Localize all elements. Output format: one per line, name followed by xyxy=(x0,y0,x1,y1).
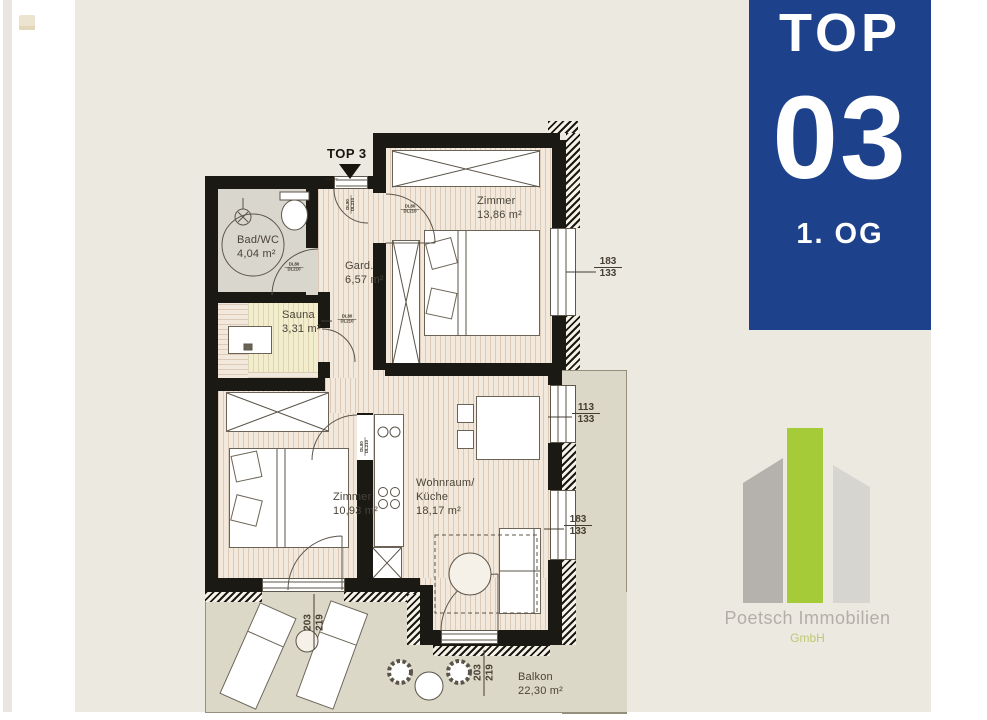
bed2-lines xyxy=(277,449,285,547)
stove-burner xyxy=(379,488,388,497)
room-area: 22,30 m² xyxy=(518,684,563,698)
window-dim: 113 133 xyxy=(572,402,600,425)
stove-burner xyxy=(391,500,400,509)
company-suffix: GmbH xyxy=(700,631,915,645)
room-area: 3,31 m² xyxy=(282,322,321,336)
door-tag: DL90 DL210 xyxy=(346,195,355,214)
dim-width: 183 xyxy=(564,514,592,526)
entrance-arrow-icon xyxy=(339,164,361,179)
window-dim: 183 133 xyxy=(564,514,592,537)
logo-green-bar xyxy=(787,428,823,603)
balcony-chair xyxy=(389,661,411,683)
company-logo-icon xyxy=(738,425,878,607)
door-tag-line: DL210 xyxy=(338,320,357,324)
room-name: Zimmer xyxy=(333,490,378,504)
appliance-cross xyxy=(373,548,401,578)
door-arc-bedroom1 xyxy=(386,194,435,243)
balcony-chair xyxy=(448,661,470,683)
room-area: 10,93 m² xyxy=(333,504,378,518)
door-tag-line: DL210 xyxy=(351,195,355,214)
unit-badge: TOP 03 1. OG xyxy=(749,0,931,330)
dim-height: 133 xyxy=(572,414,600,425)
room-area: 6,57 m² xyxy=(345,273,384,287)
door-arc-sauna xyxy=(322,329,355,362)
room-label-bedroom2: Zimmer 10,93 m² xyxy=(333,490,378,518)
wardrobe-cross xyxy=(227,393,328,431)
door-tag: DL80 DL210 xyxy=(285,263,304,272)
entrance-small-tag: SW 80C xyxy=(325,178,338,182)
room-area: 4,04 m² xyxy=(237,247,279,261)
room-label-sauna: Sauna 3,31 m² xyxy=(282,308,321,336)
door-tag: DL80 DL210 xyxy=(401,205,420,214)
wardrobe-cross xyxy=(393,241,419,363)
window-dim: 183 133 xyxy=(594,256,622,279)
badge-unit-number: 03 xyxy=(749,90,931,186)
sink-basin xyxy=(378,427,388,437)
window-mullions xyxy=(558,229,566,559)
dim-width: 203 xyxy=(473,659,485,687)
door-tag-line: DL210 xyxy=(401,210,420,214)
badge-floor: 1. OG xyxy=(749,218,931,251)
sink-drain xyxy=(244,344,252,350)
round-table-living xyxy=(449,553,491,595)
room-area: 18,17 m² xyxy=(416,504,474,518)
door-tag: DL80 DL210 xyxy=(360,437,369,456)
sink-basin xyxy=(390,427,400,437)
door-dim: 203 219 xyxy=(303,609,326,637)
room-name: Sauna xyxy=(282,308,321,322)
room-label-balcony: Balkon 22,30 m² xyxy=(518,670,563,698)
room-label-garderobe: Gard. 6,57 m² xyxy=(345,259,384,287)
entrance-marker: TOP 3 xyxy=(327,146,367,161)
room-name: Zimmer xyxy=(477,194,522,208)
door-tag-line: DL210 xyxy=(365,437,369,456)
room-area: 13,86 m² xyxy=(477,208,522,222)
dim-width: 203 xyxy=(303,609,315,637)
balcony-table xyxy=(415,672,443,700)
room-name: Wohnraum/ xyxy=(416,476,474,490)
dim-width: 113 xyxy=(572,402,600,414)
dim-width: 183 xyxy=(594,256,622,268)
door-tag: DL80 DL210 xyxy=(338,315,357,324)
door-arc-bedroom2 xyxy=(312,415,357,460)
room-name: Gard. xyxy=(345,259,384,273)
wc-bowl xyxy=(282,200,308,230)
room-name-2: Küche xyxy=(416,490,474,504)
door-dim: 203 219 xyxy=(473,659,496,687)
dim-height: 133 xyxy=(594,268,622,279)
logo-building-left xyxy=(743,458,783,603)
stove-burner xyxy=(379,500,388,509)
page: TOP 3 SW 80C Bad/WC 4,04 m² Gard. 6,57 m… xyxy=(0,0,987,720)
company-name: Poetsch Immobilien xyxy=(700,608,915,629)
wc-cistern xyxy=(280,192,309,200)
badge-top-label: TOP xyxy=(749,2,931,64)
wardrobe-cross xyxy=(392,151,540,187)
room-label-living: Wohnraum/ Küche 18,17 m² xyxy=(416,476,474,518)
sofa-lines xyxy=(500,529,540,613)
dim-height: 133 xyxy=(564,526,592,537)
dim-height: 219 xyxy=(485,659,496,687)
door-tag-line: DL210 xyxy=(285,268,304,272)
bed1-lines xyxy=(458,231,466,336)
room-label-bath: Bad/WC 4,04 m² xyxy=(237,233,279,261)
logo-building-right xyxy=(833,465,870,603)
stove-burner xyxy=(391,488,400,497)
room-name: Bad/WC xyxy=(237,233,279,247)
room-name: Balkon xyxy=(518,670,563,684)
dim-height: 219 xyxy=(315,609,326,637)
room-label-bedroom1: Zimmer 13,86 m² xyxy=(477,194,522,222)
